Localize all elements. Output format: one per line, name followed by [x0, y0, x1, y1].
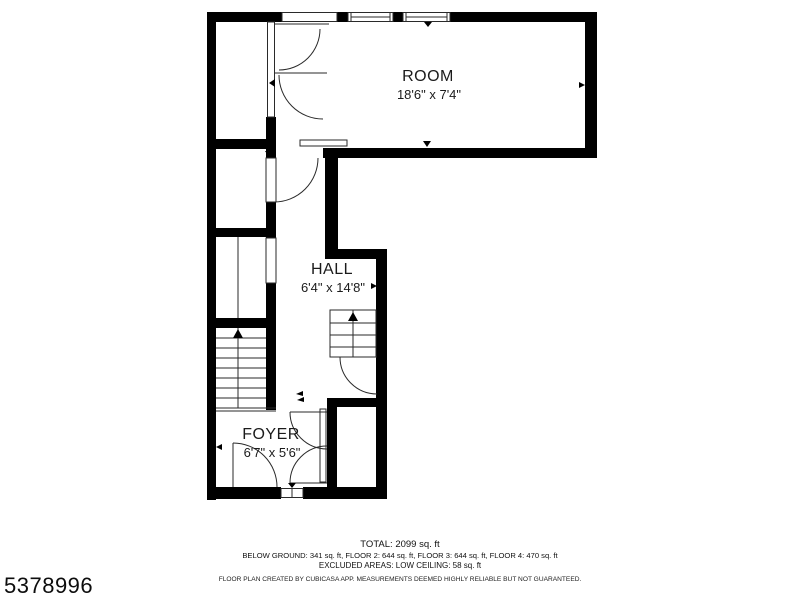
window-top-3	[403, 13, 450, 22]
room-dimensions: 18'6" x 7'4"	[397, 87, 461, 102]
closet-opening	[268, 22, 275, 117]
floor-plan-page: ROOM 18'6" x 7'4" HALL 6'4" x 14'8" FOYE…	[0, 0, 800, 600]
room-label: ROOM	[402, 68, 454, 85]
window-top-2	[348, 13, 393, 22]
marker-room-wall	[423, 141, 431, 147]
summary-excluded: EXCLUDED AREAS: LOW CEILING: 58 sq. ft	[0, 561, 800, 570]
hall-label: HALL	[311, 261, 353, 278]
stairs-up-arrow	[348, 312, 358, 331]
listing-id-watermark: 5378996	[4, 573, 93, 599]
hall-dimensions: 6'4" x 14'8"	[301, 280, 365, 295]
marker-entry	[288, 483, 296, 488]
foyer-dimensions: 6'7" x 5'6"	[244, 445, 301, 460]
cased-opening	[266, 238, 276, 283]
window-entry	[281, 489, 303, 498]
window-top-1	[282, 13, 337, 22]
stairs-up-arrow	[233, 329, 243, 350]
stairs-hall	[330, 310, 376, 357]
marker-right-wall	[579, 82, 585, 88]
marker-passage-b	[297, 397, 304, 402]
floor-plan-canvas: ROOM 18'6" x 7'4" HALL 6'4" x 14'8" FOYE…	[0, 0, 800, 600]
summary-floors: BELOW GROUND: 341 sq. ft, FLOOR 2: 644 s…	[0, 551, 800, 560]
foyer-label: FOYER	[242, 426, 300, 443]
hall-top-door	[274, 158, 318, 202]
summary-disclaimer: FLOOR PLAN CREATED BY CUBICASA APP. MEAS…	[0, 576, 800, 583]
marker-left-wall	[216, 444, 222, 450]
hall-door-opening	[266, 158, 276, 202]
hall-lower-door	[330, 357, 377, 394]
marker-window	[424, 22, 432, 27]
summary-total: TOTAL: 2099 sq. ft	[0, 539, 800, 550]
marker-passage-a	[296, 391, 303, 396]
closet-double-door	[275, 24, 329, 119]
ledge	[300, 140, 347, 146]
